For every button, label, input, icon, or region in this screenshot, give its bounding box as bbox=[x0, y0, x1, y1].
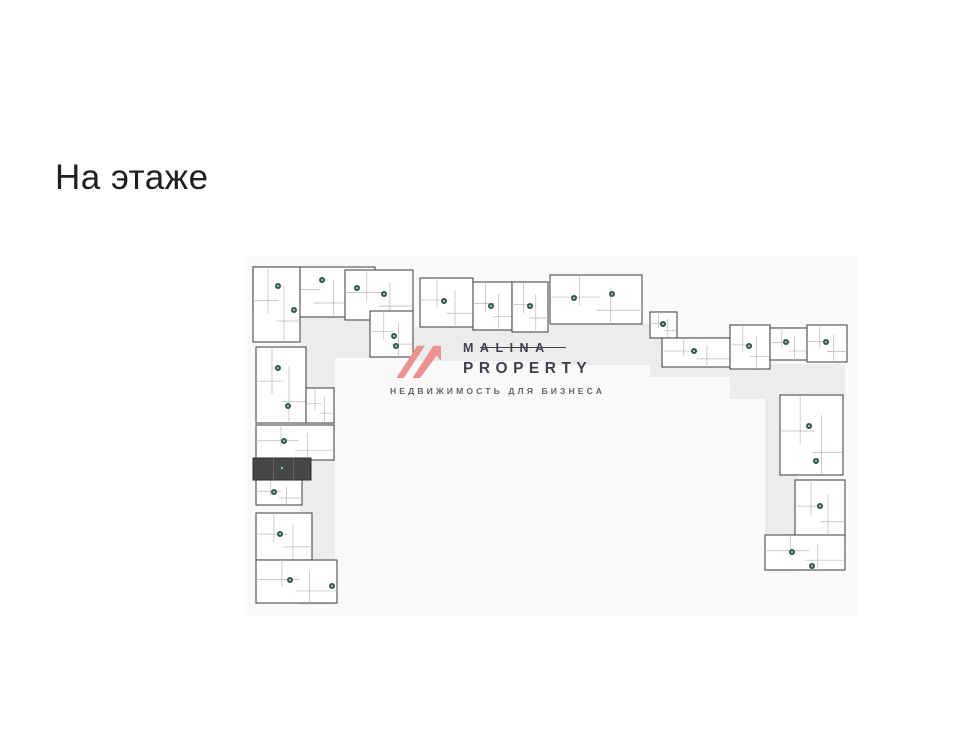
building-block bbox=[770, 328, 807, 360]
unit-marker-dot bbox=[321, 279, 323, 281]
unit-marker-dot bbox=[791, 551, 793, 553]
unit-marker-dot bbox=[293, 309, 295, 311]
brand-tagline: НЕДВИЖИМОСТЬ ДЛЯ БИЗНЕСА bbox=[390, 386, 586, 396]
building-block bbox=[306, 388, 334, 423]
unit-marker-dot bbox=[287, 405, 289, 407]
unit-marker-dot bbox=[825, 341, 827, 343]
unit-marker-dot bbox=[383, 293, 385, 295]
unit-marker-dot bbox=[611, 293, 613, 295]
unit-marker-dot bbox=[748, 345, 750, 347]
building-block bbox=[256, 480, 302, 505]
unit-marker-dot bbox=[662, 323, 664, 325]
watermark-logo: MALINA PROPERTY НЕДВИЖИМОСТЬ ДЛЯ БИЗНЕСА bbox=[390, 340, 586, 396]
building-block bbox=[256, 513, 312, 560]
building-blocks bbox=[253, 267, 847, 603]
unit-marker-dot bbox=[277, 367, 279, 369]
unit-marker-dot bbox=[283, 440, 285, 442]
building-block bbox=[765, 535, 845, 570]
unit-marker-dot bbox=[281, 467, 283, 469]
unit-marker-dot bbox=[331, 585, 333, 587]
unit-marker-dot bbox=[279, 533, 281, 535]
building-block bbox=[256, 425, 334, 460]
unit-marker-dot bbox=[273, 491, 275, 493]
unit-marker-dot bbox=[808, 425, 810, 427]
building-block bbox=[253, 267, 300, 342]
building-block bbox=[550, 275, 642, 324]
unit-marker-dot bbox=[693, 350, 695, 352]
unit-marker-dot bbox=[393, 335, 395, 337]
brand-name-second: PROPERTY bbox=[463, 361, 592, 377]
page-title: На этаже bbox=[55, 158, 209, 198]
building-block bbox=[780, 395, 843, 475]
unit-marker-dot bbox=[443, 300, 445, 302]
unit-marker-dot bbox=[815, 460, 817, 462]
malina-m-icon bbox=[390, 340, 452, 378]
building-block bbox=[256, 560, 337, 603]
unit-marker-dot bbox=[356, 287, 358, 289]
unit-marker-dot bbox=[277, 285, 279, 287]
building-block bbox=[256, 347, 306, 423]
floor-plan-svg[interactable] bbox=[244, 256, 858, 616]
unit-marker-dot bbox=[490, 305, 492, 307]
unit-marker-dot bbox=[289, 579, 291, 581]
unit-marker-dot bbox=[819, 505, 821, 507]
unit-marker-dot bbox=[785, 341, 787, 343]
unit-marker-dot bbox=[811, 565, 813, 567]
brand-strike-line bbox=[480, 347, 566, 348]
unit-marker-dot bbox=[529, 305, 531, 307]
floor-plan-image[interactable]: MALINA PROPERTY НЕДВИЖИМОСТЬ ДЛЯ БИЗНЕСА bbox=[244, 256, 858, 616]
floor-page: На этаже MALINA PROPERTY НЕДВИЖИМОСТЬ ДЛ… bbox=[0, 0, 968, 735]
unit-marker-dot bbox=[573, 297, 575, 299]
